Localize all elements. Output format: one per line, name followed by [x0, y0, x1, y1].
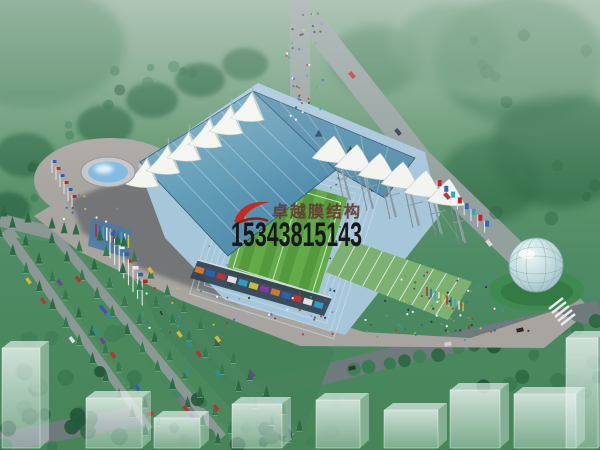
person-dot: [95, 216, 97, 218]
person-dot: [386, 315, 388, 317]
round-tree: [413, 350, 426, 363]
flag: [143, 280, 148, 284]
person-dot: [446, 325, 448, 327]
person-dot: [154, 287, 156, 289]
person-dot: [146, 321, 148, 323]
person-dot: [414, 281, 416, 283]
person-dot: [415, 334, 417, 336]
person-dot: [454, 330, 456, 332]
person-dot: [485, 286, 487, 288]
spectator-dot: [227, 297, 229, 299]
person-dot: [438, 316, 440, 318]
person-dot: [63, 218, 65, 220]
round-tree: [306, 436, 317, 447]
person-dot: [226, 322, 228, 324]
person-dot: [333, 290, 335, 292]
person-dot: [403, 299, 405, 301]
person-dot: [428, 318, 430, 320]
ghost-building: [2, 348, 40, 448]
person-dot: [445, 329, 447, 331]
person-dot: [413, 288, 415, 290]
person-dot: [404, 328, 406, 330]
person-dot: [146, 292, 148, 294]
person-dot: [324, 299, 326, 301]
person-dot: [471, 324, 473, 326]
ghost-building-roof: [384, 403, 447, 410]
flag: [73, 195, 77, 198]
round-tree: [57, 369, 73, 385]
person-dot: [408, 302, 410, 304]
person-dot: [406, 313, 408, 315]
flag: [465, 203, 469, 209]
person-dot: [324, 317, 326, 319]
person-dot: [460, 304, 462, 306]
person-dot: [447, 331, 449, 333]
person-dot: [72, 207, 74, 209]
person-dot: [453, 319, 455, 321]
ghost-building-roof: [450, 383, 509, 390]
flag: [485, 221, 489, 227]
person-dot: [431, 305, 433, 307]
person-dot: [400, 278, 402, 280]
ghost-building: [450, 390, 500, 448]
ghost-building: [384, 410, 438, 448]
flag: [478, 215, 482, 221]
person-dot: [423, 275, 425, 277]
ghost-building-side: [360, 393, 369, 448]
person-dot: [299, 309, 301, 311]
person-dot: [169, 331, 171, 333]
round-tree: [127, 370, 142, 385]
round-tree: [94, 366, 105, 377]
round-tree: [30, 194, 38, 202]
person-dot: [447, 305, 449, 307]
person-dot: [410, 305, 412, 307]
person-dot: [286, 308, 288, 310]
spectator-dot: [332, 311, 334, 313]
person-dot: [229, 284, 231, 286]
round-tree: [384, 357, 396, 369]
ghost-building: [566, 338, 598, 448]
person-dot: [329, 288, 331, 290]
person-dot: [421, 295, 423, 297]
flag: [472, 209, 476, 215]
person-dot: [449, 300, 451, 302]
person-dot: [248, 297, 250, 299]
person-dot: [493, 308, 495, 310]
person-dot: [116, 207, 118, 209]
person-dot: [384, 300, 386, 302]
person-dot: [494, 330, 496, 332]
person-dot: [302, 333, 304, 335]
person-dot: [376, 335, 378, 337]
person-dot: [313, 318, 315, 320]
ghost-building-side: [40, 341, 49, 448]
person-dot: [295, 303, 297, 305]
round-tree: [104, 325, 122, 343]
person-dot: [177, 287, 179, 289]
ghost-building-roof: [154, 411, 209, 418]
person-dot: [490, 331, 492, 333]
ghost-building: [154, 418, 200, 448]
person-dot: [456, 280, 458, 282]
person-dot: [171, 302, 173, 304]
round-tree: [398, 354, 411, 367]
round-tree: [515, 370, 529, 384]
person-dot: [459, 314, 461, 316]
ghost-building-side: [282, 397, 291, 448]
ghost-building-roof: [232, 397, 291, 404]
person-dot: [314, 316, 316, 318]
round-tree: [70, 408, 85, 423]
ghost-building-roof: [316, 393, 369, 400]
person-dot: [438, 298, 440, 300]
person-dot: [407, 309, 409, 311]
person-dot: [320, 315, 322, 317]
spectator-dot: [310, 315, 312, 317]
flag: [458, 197, 462, 203]
person-dot: [450, 318, 452, 320]
person-dot: [432, 308, 434, 310]
person-dot: [161, 313, 163, 315]
person-dot: [325, 306, 327, 308]
person-dot: [366, 331, 368, 333]
ghost-building-side: [500, 383, 509, 448]
person-dot: [469, 290, 471, 292]
person-dot: [467, 317, 469, 319]
flag: [134, 266, 139, 270]
person-dot: [213, 323, 215, 325]
person-dot: [310, 296, 312, 298]
person-dot: [412, 311, 414, 313]
person-dot: [216, 296, 218, 298]
person-dot: [467, 290, 469, 292]
person-dot: [268, 314, 270, 316]
round-tree: [550, 373, 565, 388]
person-dot: [66, 207, 68, 209]
spectator-dot: [238, 298, 240, 300]
person-dot: [142, 313, 144, 315]
flag: [124, 252, 129, 256]
person-dot: [395, 329, 397, 331]
round-tree: [431, 348, 445, 362]
round-tree: [544, 212, 558, 226]
ghost-building-roof: [86, 391, 151, 398]
person-dot: [426, 271, 428, 273]
person-dot: [452, 307, 454, 309]
ghost-building: [316, 400, 360, 448]
ghost-building: [232, 404, 282, 448]
spectator-dot: [200, 290, 202, 292]
person-dot: [430, 279, 432, 281]
glass-sphere: [509, 238, 563, 292]
person-dot: [331, 333, 333, 335]
round-tree: [362, 360, 376, 374]
ghost-building: [86, 398, 142, 448]
person-dot: [83, 195, 85, 197]
spectator-dot: [226, 264, 228, 266]
spectator-dot: [329, 257, 331, 259]
person-dot: [501, 310, 503, 312]
person-dot: [440, 323, 442, 325]
person-dot: [459, 329, 461, 331]
round-tree: [489, 206, 503, 220]
person-dot: [105, 220, 107, 222]
person-dot: [160, 327, 162, 329]
person-dot: [400, 325, 402, 327]
person-dot: [299, 292, 301, 294]
person-dot: [274, 317, 276, 319]
person-dot: [160, 311, 162, 313]
spectator-dot: [208, 245, 210, 247]
person-dot: [398, 324, 400, 326]
person-dot: [436, 315, 438, 317]
person-dot: [436, 301, 438, 303]
person-dot: [447, 292, 449, 294]
stadium-rendering-image: 卓越膜结构 15343815143: [0, 0, 600, 450]
person-dot: [421, 324, 423, 326]
person-dot: [468, 325, 470, 327]
person-dot: [364, 319, 366, 321]
flag: [111, 232, 116, 236]
person-dot: [178, 316, 180, 318]
person-dot: [466, 301, 468, 303]
person-dot: [71, 212, 73, 214]
flag: [138, 273, 143, 277]
person-dot: [464, 339, 466, 341]
person-dot: [148, 327, 150, 329]
round-tree: [528, 350, 539, 361]
sphere-highlight: [519, 249, 535, 259]
person-dot: [479, 327, 481, 329]
person-dot: [488, 280, 490, 282]
person-dot: [292, 297, 294, 299]
person-dot: [270, 313, 272, 315]
person-dot: [472, 318, 474, 320]
person-dot: [428, 297, 430, 299]
person-dot: [430, 321, 432, 323]
person-dot: [404, 275, 406, 277]
person-dot: [477, 285, 479, 287]
person-dot: [527, 330, 529, 332]
person-dot: [84, 208, 86, 210]
person-dot: [233, 318, 235, 320]
ghost-building-side: [142, 391, 151, 448]
person-dot: [177, 325, 179, 327]
spectator-dot: [208, 289, 210, 291]
watermark-phone-number: 15343815143: [231, 218, 362, 252]
person-dot: [370, 324, 372, 326]
